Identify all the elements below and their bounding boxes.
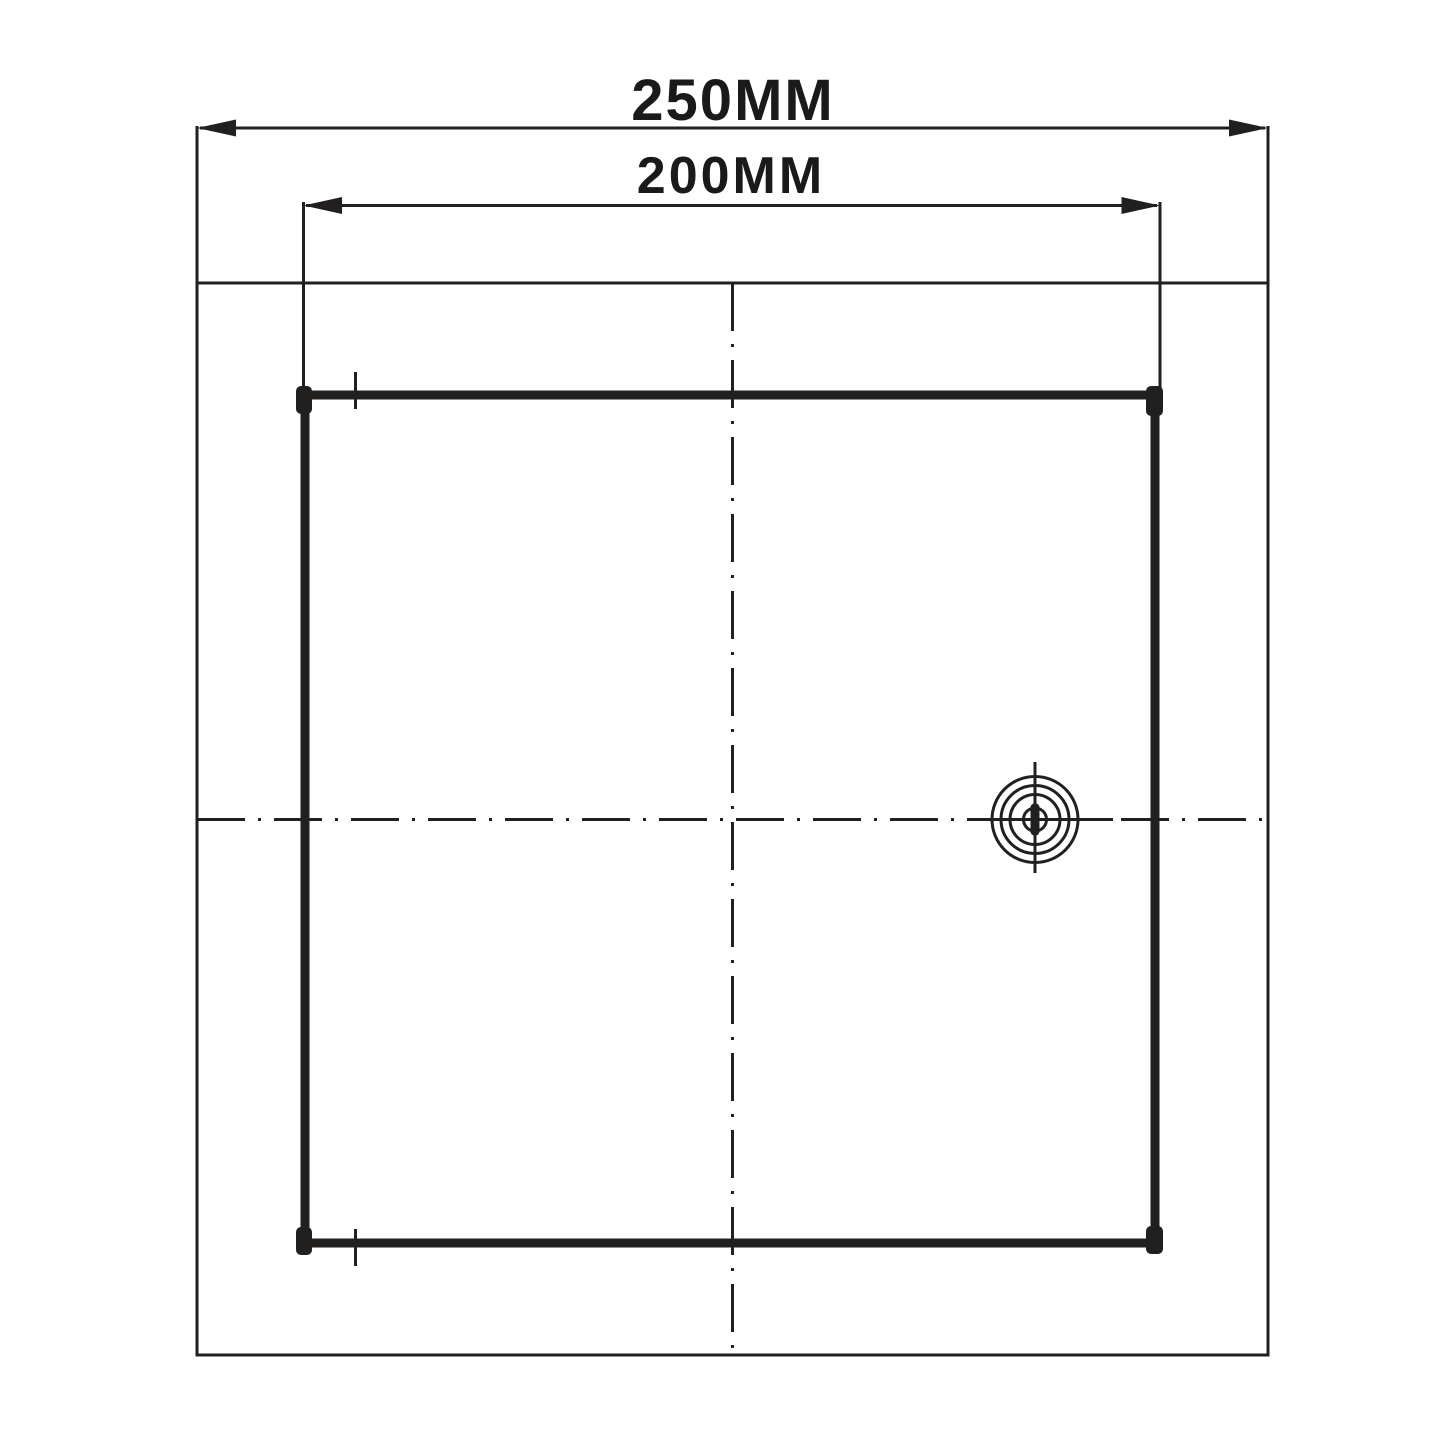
dimension-inner-200: 200MM — [304, 147, 1161, 392]
lock-keyway-slot — [1031, 804, 1040, 836]
dimension-label-outer: 250MM — [631, 68, 834, 133]
arrow-left-icon — [197, 120, 236, 137]
arrow-right-icon — [1229, 120, 1268, 137]
dimension-label-inner: 200MM — [637, 147, 825, 205]
door-corner-pad-bottom-left — [296, 1227, 312, 1255]
door-corner-pad-bottom-right — [1146, 1226, 1163, 1254]
arrow-left-icon — [304, 197, 343, 214]
access-panel-dimension-drawing: 250MM 200MM — [0, 0, 1445, 1445]
lock-keyhole-icon — [985, 762, 1113, 873]
arrow-right-icon — [1122, 197, 1161, 214]
technical-drawing-canvas: 250MM 200MM — [0, 0, 1445, 1445]
